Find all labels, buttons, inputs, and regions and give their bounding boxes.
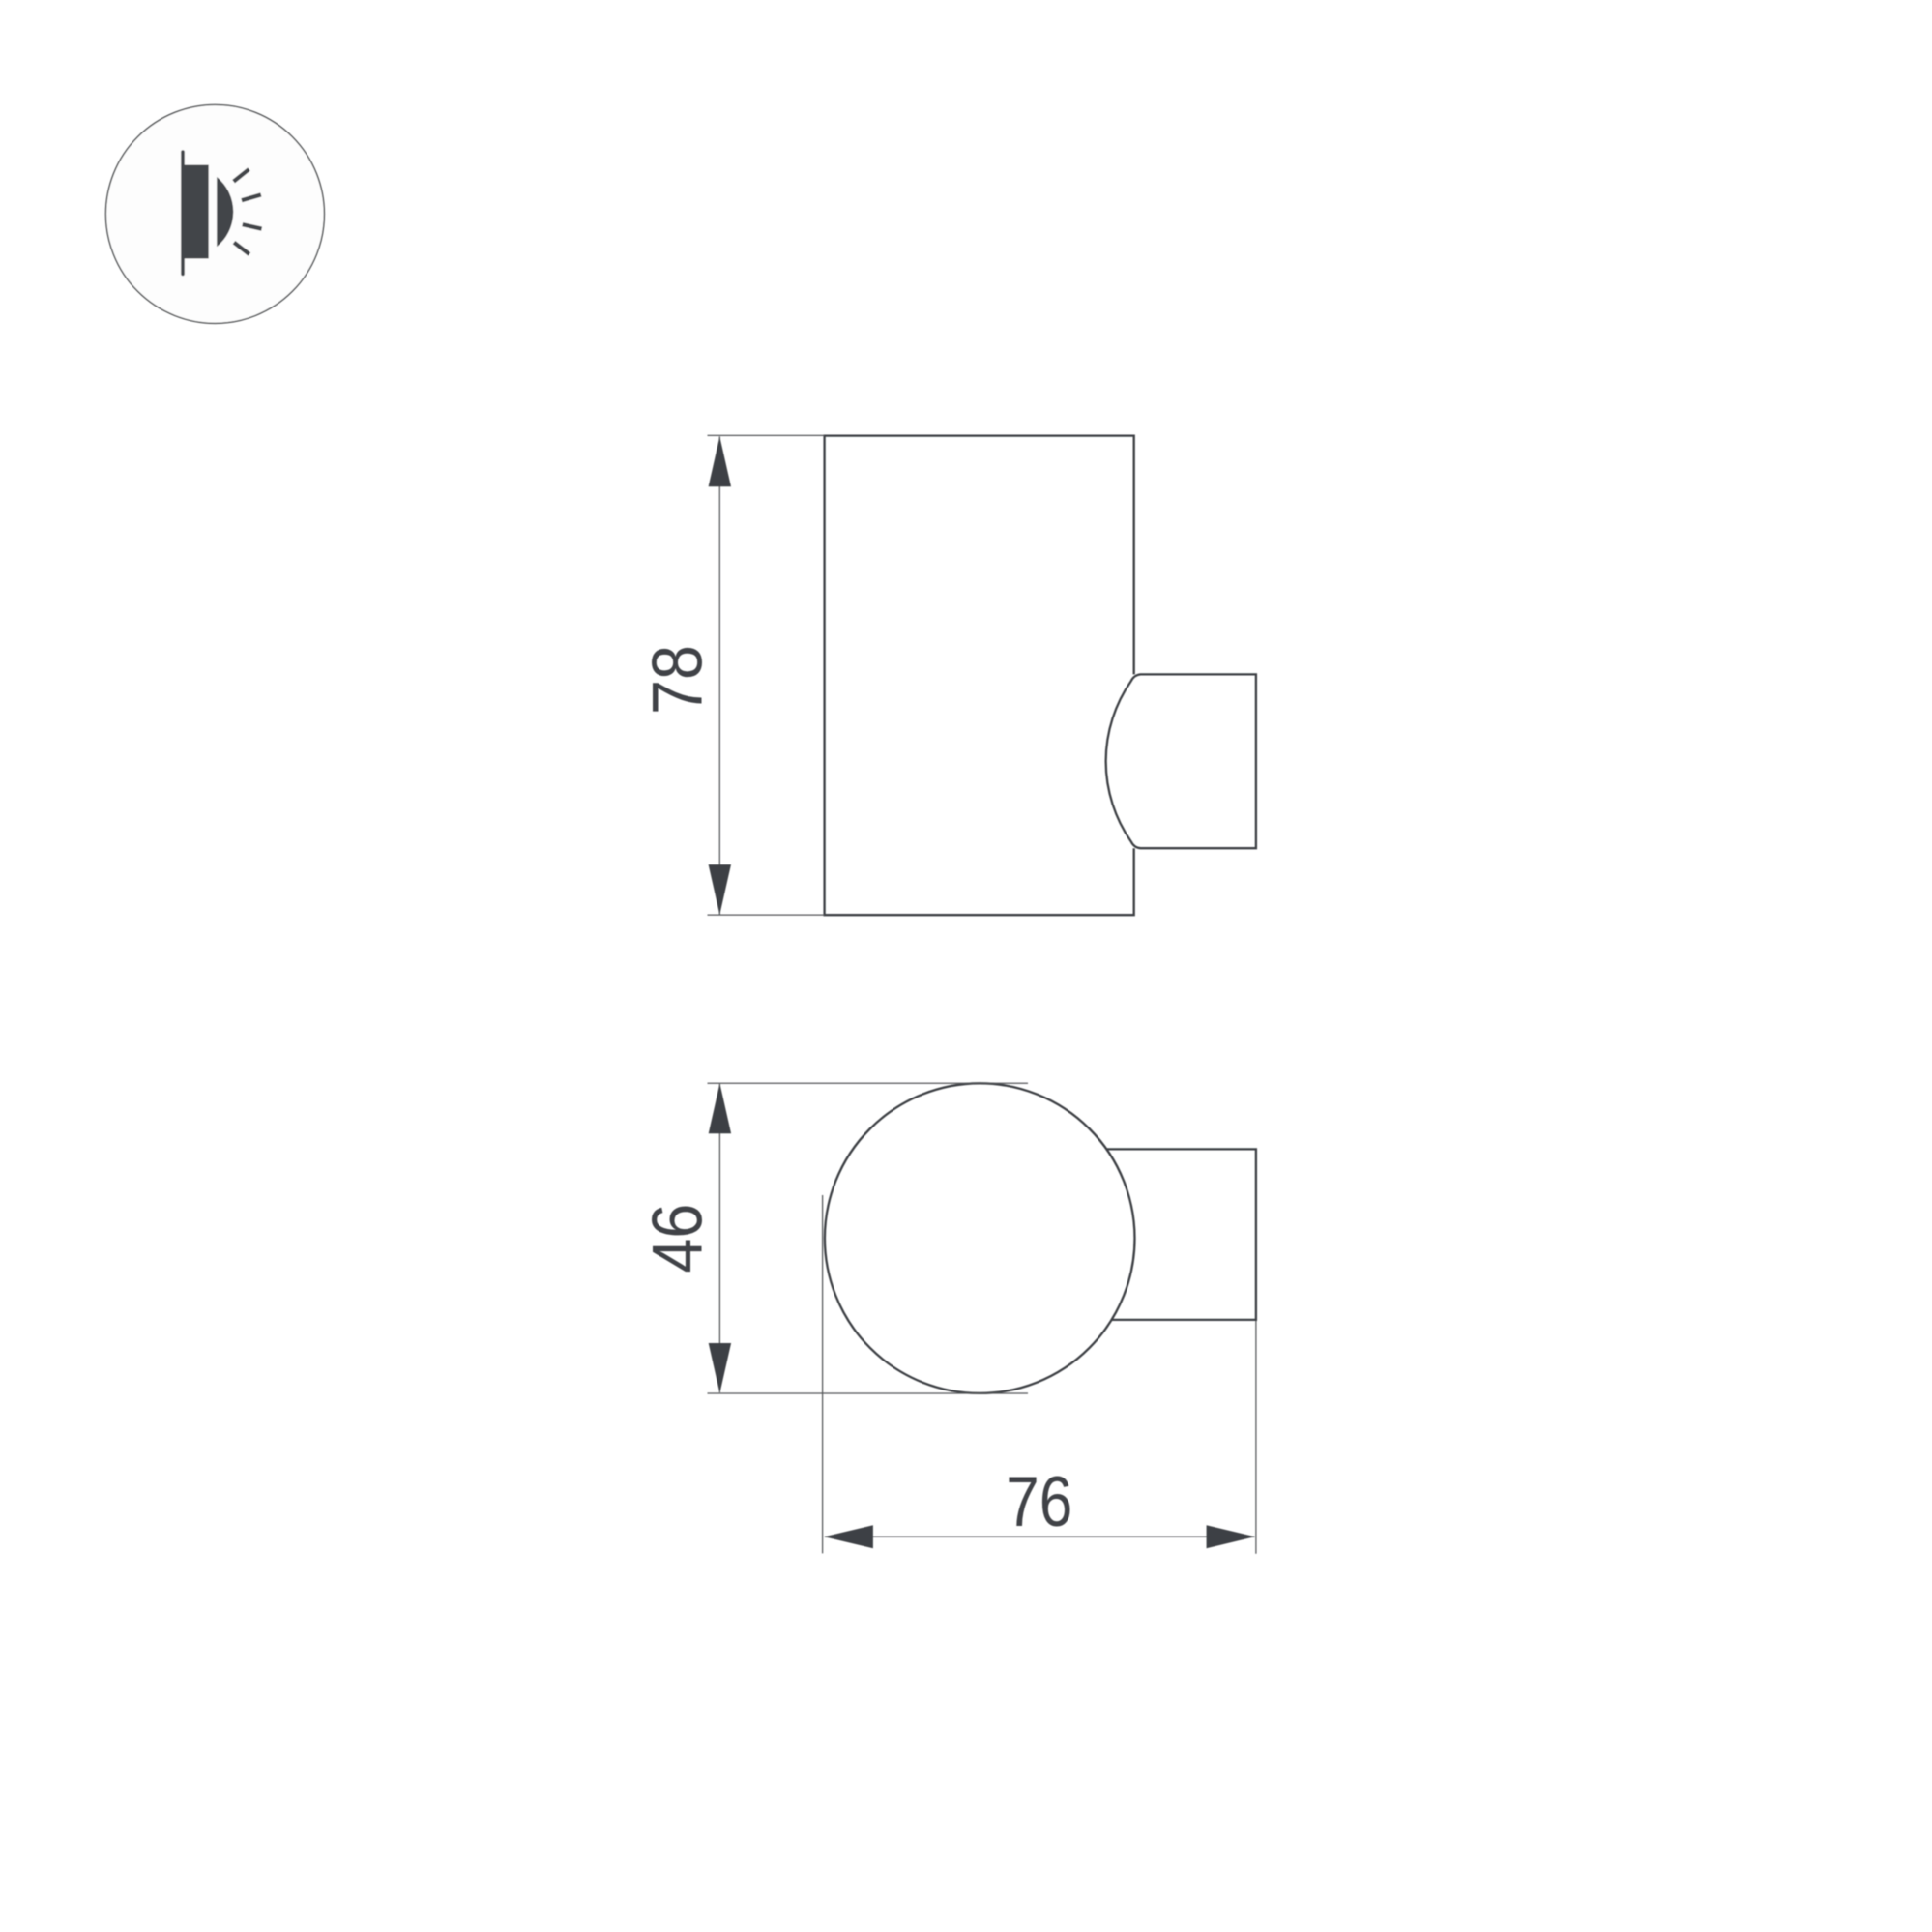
- svg-text:46: 46: [637, 1204, 717, 1273]
- svg-text:76: 76: [1006, 1461, 1072, 1541]
- svg-text:78: 78: [637, 645, 717, 715]
